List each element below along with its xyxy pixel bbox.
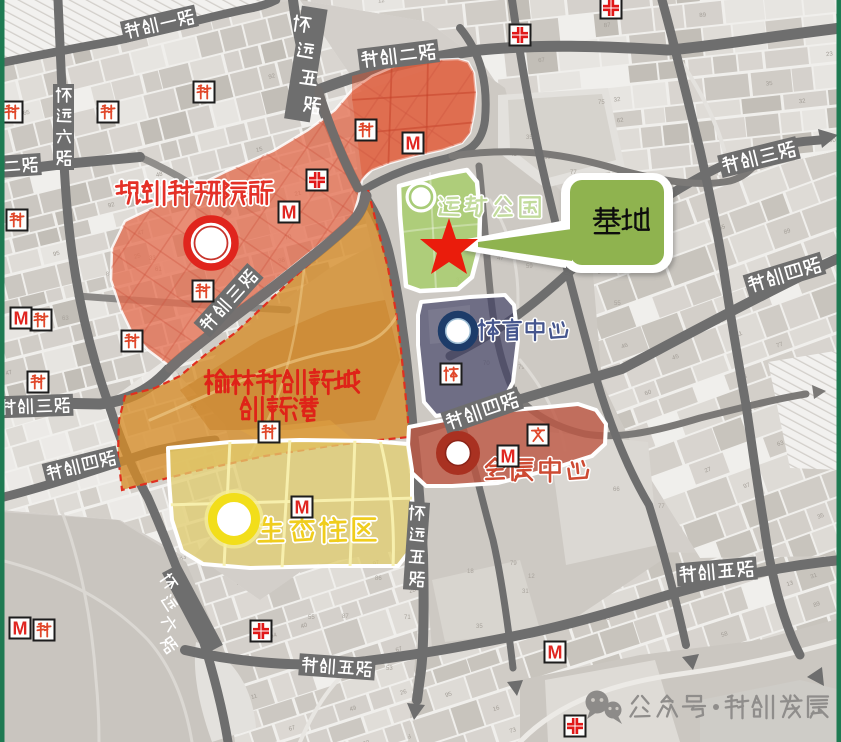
svg-text:23: 23 — [826, 51, 834, 58]
svg-text:53: 53 — [386, 666, 393, 672]
svg-text:67: 67 — [538, 58, 546, 65]
svg-text:59: 59 — [526, 264, 533, 270]
svg-text:31: 31 — [522, 589, 529, 595]
svg-text:86: 86 — [375, 576, 382, 582]
svg-text:32: 32 — [799, 98, 807, 105]
svg-text:89: 89 — [699, 12, 707, 19]
svg-text:62: 62 — [617, 118, 625, 125]
svg-text:55: 55 — [614, 301, 621, 307]
svg-text:18: 18 — [467, 569, 474, 575]
svg-text:66: 66 — [613, 487, 620, 493]
svg-text:12: 12 — [528, 574, 535, 580]
svg-text:55: 55 — [308, 615, 315, 621]
svg-text:63: 63 — [62, 316, 69, 322]
svg-text:79: 79 — [510, 561, 517, 567]
svg-text:87: 87 — [604, 22, 612, 29]
svg-text:71: 71 — [404, 615, 411, 621]
svg-text:12: 12 — [378, 0, 386, 5]
svg-text:77: 77 — [658, 504, 665, 510]
svg-text:87: 87 — [342, 614, 349, 620]
svg-text:75: 75 — [598, 100, 605, 106]
svg-text:35: 35 — [766, 81, 774, 88]
svg-text:32: 32 — [613, 97, 621, 104]
svg-text:35: 35 — [476, 624, 483, 630]
